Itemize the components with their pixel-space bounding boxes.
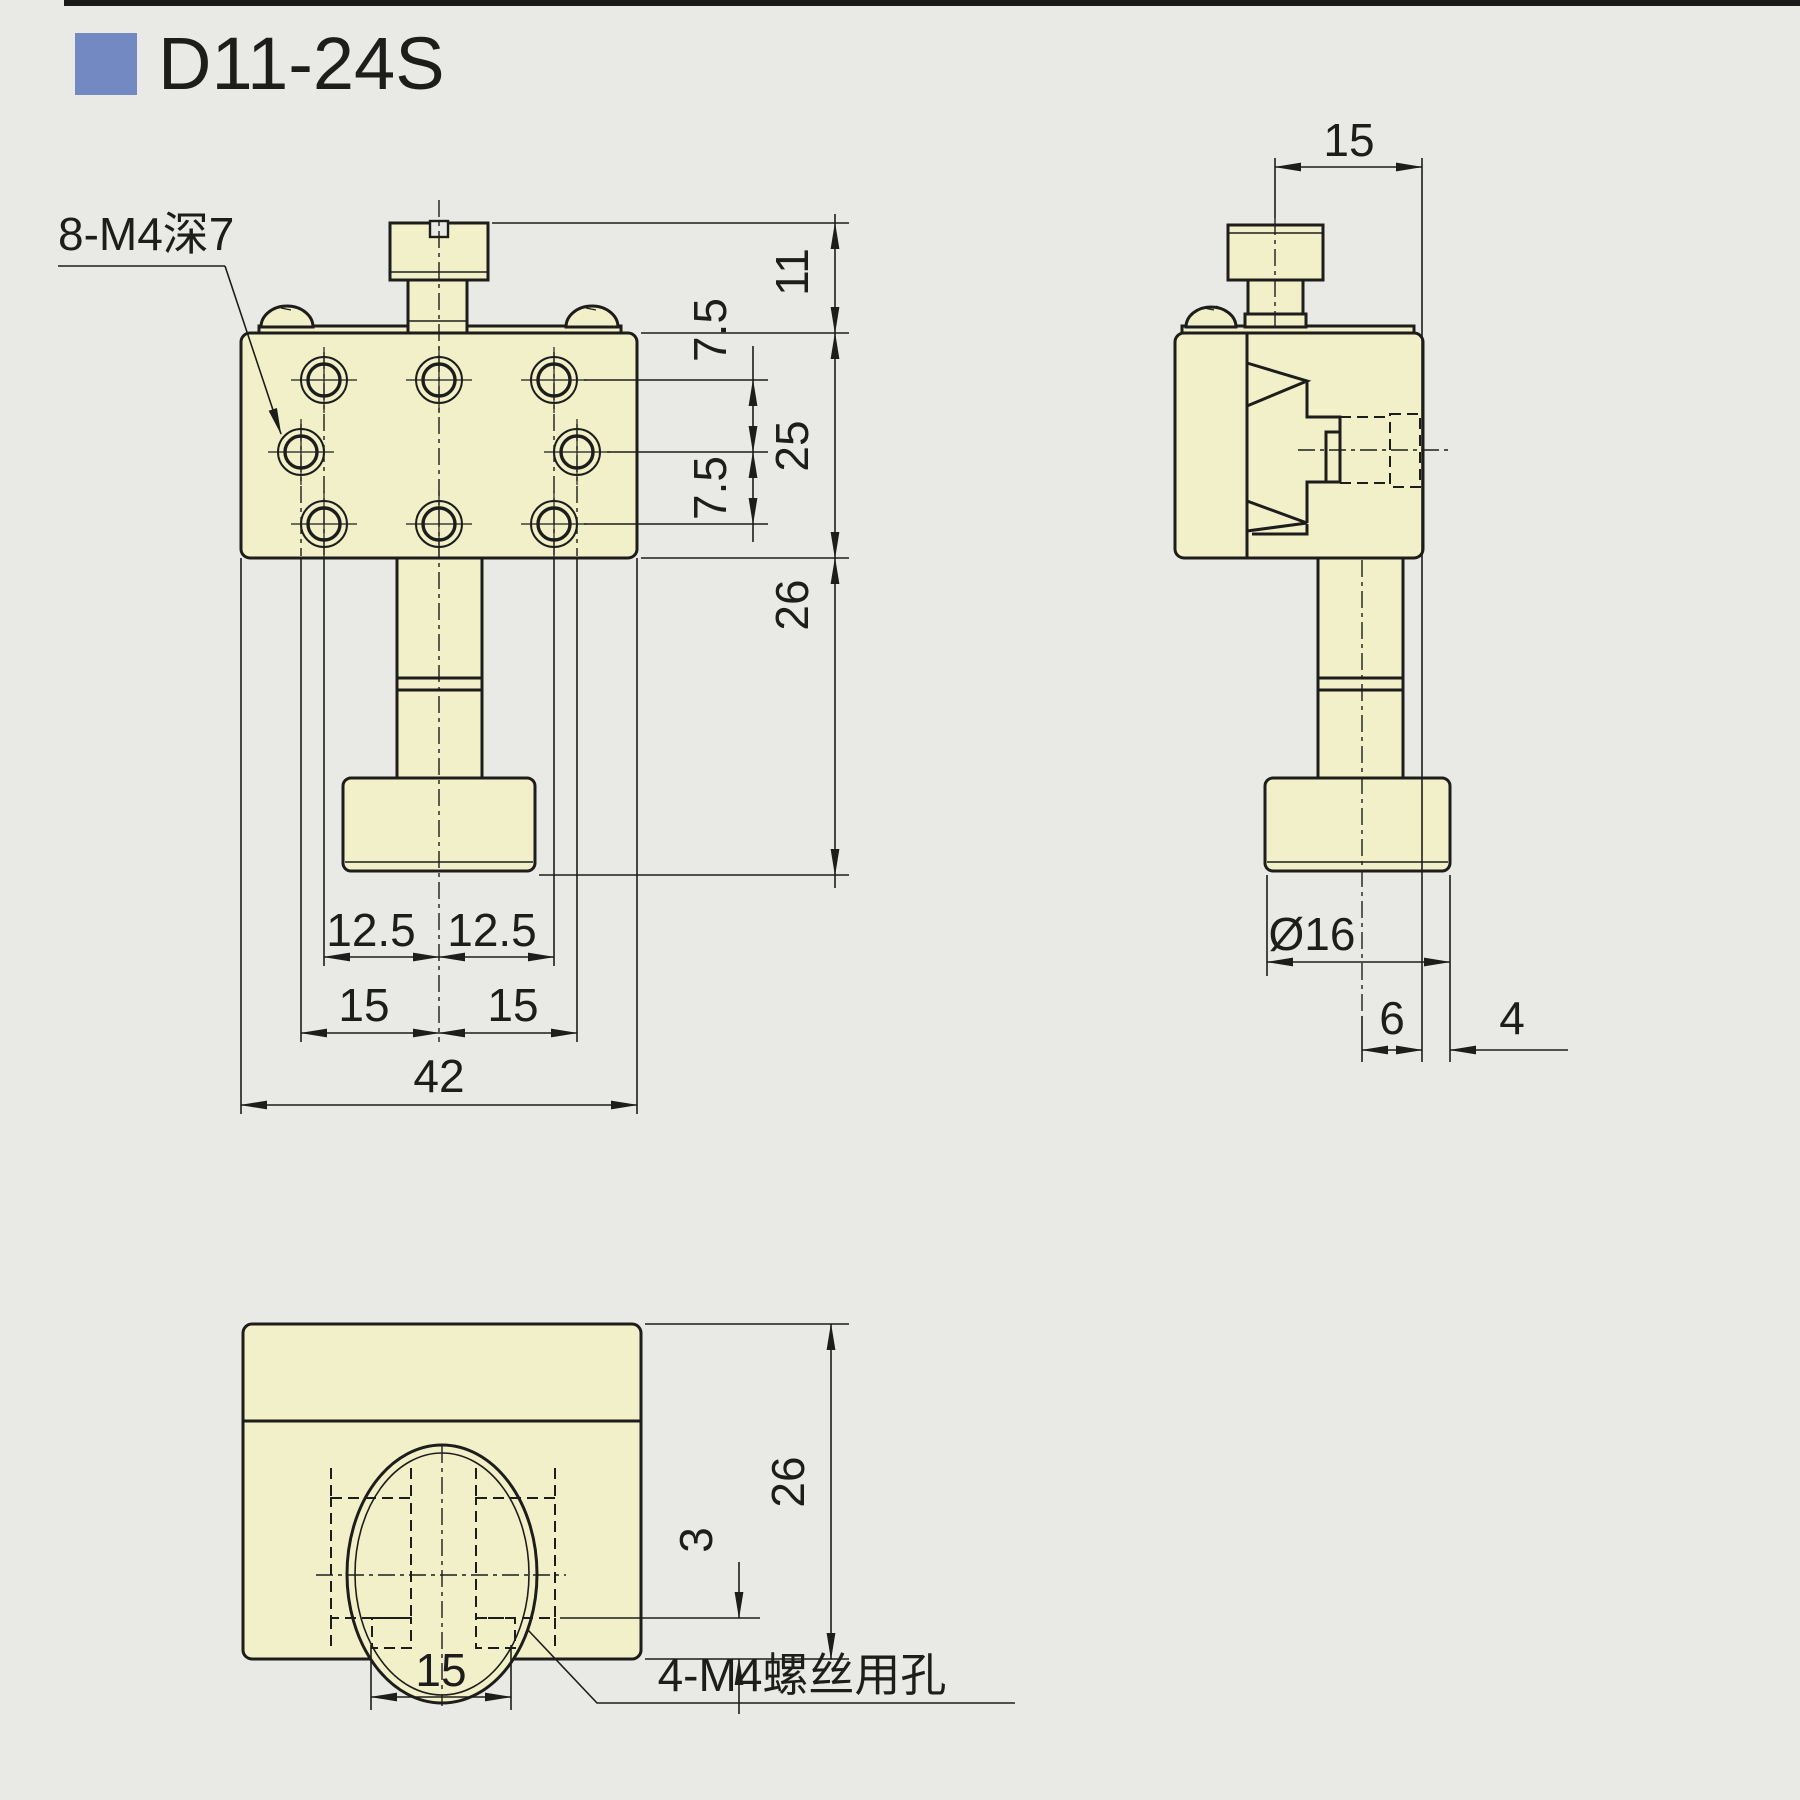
dim-text: 15 (1323, 114, 1374, 166)
dim-body-depth: 26 (645, 1324, 849, 1659)
dim-edge-to-knob: 4 (1450, 992, 1568, 1050)
side-post (1318, 558, 1403, 778)
dim-text: 26 (766, 579, 818, 630)
top-rule (64, 0, 1800, 6)
callout-text: 8-M4深7 (58, 208, 234, 260)
dim-text: Ø16 (1269, 908, 1356, 960)
dim-text: 15 (338, 979, 389, 1031)
dim-text: 12.5 (447, 904, 537, 956)
side-view: 15 Ø16 6 4 (1175, 114, 1568, 1062)
dim-text: 11 (766, 248, 818, 296)
dim-text: 12.5 (326, 904, 416, 956)
callout-text: 4-M4螺丝用孔 (658, 1649, 947, 1701)
technical-drawing: D11-24S (0, 0, 1800, 1800)
title-bullet-icon (75, 33, 137, 95)
page-header: D11-24S (64, 0, 1800, 105)
dim-text: 26 (762, 1456, 814, 1507)
dim-center-to-edge: 6 (1362, 992, 1422, 1062)
dim-text: 15 (415, 1644, 466, 1696)
dim-text: 3 (670, 1527, 722, 1553)
screw-neck (408, 280, 467, 333)
dim-text: 25 (766, 420, 818, 471)
dim-overall-width: 42 (241, 1050, 637, 1105)
page-title: D11-24S (158, 22, 445, 105)
dim-text: 42 (413, 1050, 464, 1102)
front-view: 8-M4深7 7.5 7.5 (58, 200, 849, 1114)
dim-text: 7.5 (684, 298, 736, 362)
bottom-view: 26 3 15 4-M4螺丝用孔 (243, 1324, 1015, 1714)
dim-hole-row-pitch: 7.5 7.5 (684, 298, 753, 542)
dim-text: 15 (487, 979, 538, 1031)
dim-text: 6 (1379, 992, 1405, 1044)
dim-heights: 11 25 26 (766, 214, 835, 888)
dim-text: 4 (1499, 992, 1525, 1044)
drawing-page: D11-24S (0, 0, 1800, 1800)
dim-text: 7.5 (684, 456, 736, 520)
